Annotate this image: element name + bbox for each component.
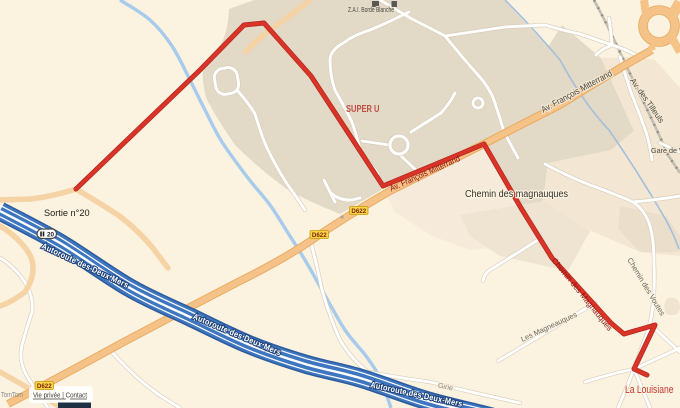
svg-text:La Louisiane: La Louisiane <box>625 384 674 396</box>
svg-text:TomTom: TomTom <box>1 390 23 399</box>
svg-text:D622: D622 <box>37 383 52 390</box>
svg-text:20: 20 <box>47 232 55 239</box>
svg-text:Vie privée | Contact: Vie privée | Contact <box>33 391 88 400</box>
svg-text:D622: D622 <box>351 208 366 215</box>
svg-text:Chemin des magnauques: Chemin des magnauques <box>465 189 568 200</box>
svg-text:Gare de Villa: Gare de Villa <box>651 146 680 155</box>
svg-text:SUPER U: SUPER U <box>346 104 380 115</box>
svg-text:Sortie n°20: Sortie n°20 <box>44 208 90 218</box>
svg-text:Z.A.I. Borde Blanche: Z.A.I. Borde Blanche <box>348 5 394 14</box>
svg-text:D622: D622 <box>312 232 327 239</box>
